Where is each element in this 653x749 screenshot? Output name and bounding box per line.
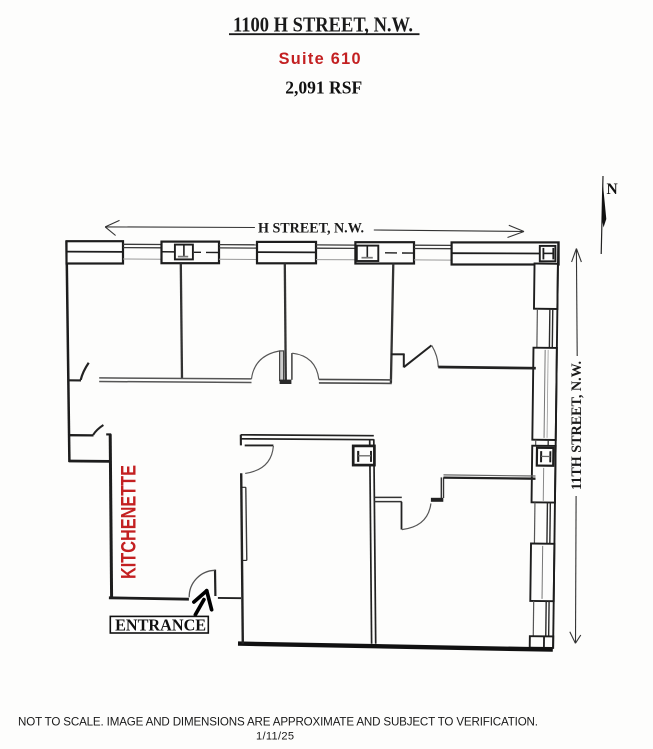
svg-text:KITCHENETTE: KITCHENETTE (118, 465, 141, 579)
svg-text:1/11/25: 1/11/25 (256, 731, 294, 743)
svg-text:N: N (607, 181, 618, 198)
svg-text:NOT TO SCALE. IMAGE AND DIMENS: NOT TO SCALE. IMAGE AND DIMENSIONS ARE A… (18, 716, 538, 729)
svg-text:H STREET, N.W.: H STREET, N.W. (258, 220, 364, 237)
svg-text:11TH STREET, N.W.: 11TH STREET, N.W. (569, 361, 585, 490)
svg-text:ENTRANCE: ENTRANCE (115, 616, 206, 635)
